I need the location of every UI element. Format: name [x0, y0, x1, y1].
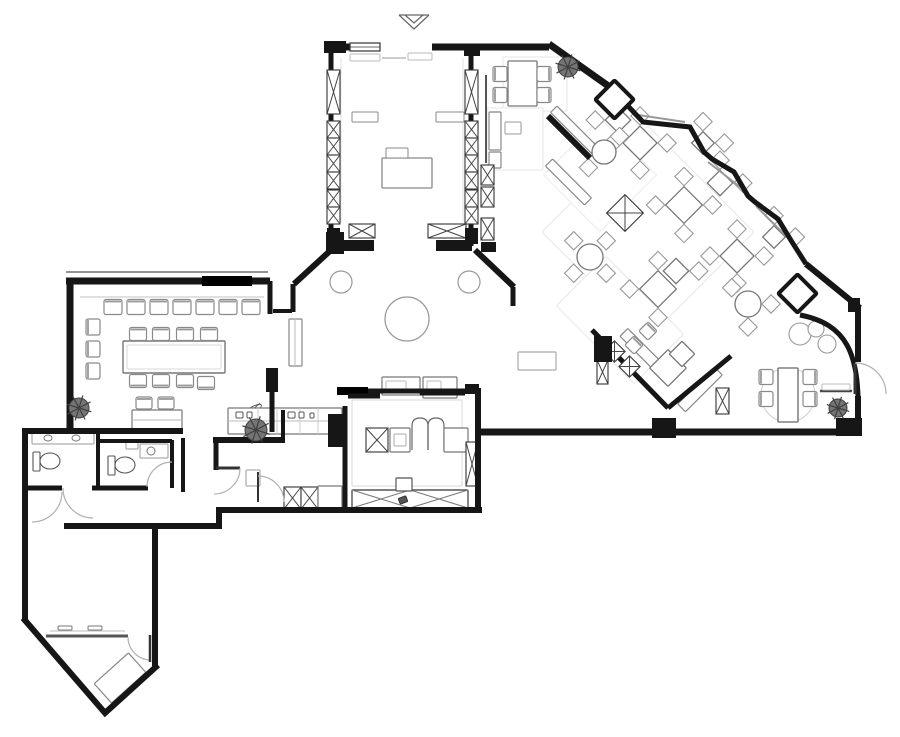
boh-equipment — [444, 428, 468, 452]
storage-furniture — [58, 626, 72, 630]
meeting-furniture — [219, 300, 237, 315]
basin — [44, 435, 52, 441]
boh-equipment — [366, 428, 388, 452]
door-swing — [63, 488, 93, 518]
floor-plan-page — [0, 0, 900, 737]
pier — [465, 207, 478, 224]
dining-furniture — [803, 370, 817, 385]
sofa — [489, 112, 501, 150]
wall — [294, 250, 331, 284]
storage-furniture — [88, 626, 102, 630]
column-block — [836, 418, 862, 436]
console — [352, 112, 378, 122]
pier — [481, 187, 494, 207]
column-block — [594, 336, 612, 362]
meeting-furniture — [242, 300, 260, 315]
basin — [147, 447, 155, 455]
corner-room-furniture — [493, 88, 507, 103]
column-block — [465, 384, 479, 394]
column-block — [436, 240, 472, 251]
column-block — [344, 240, 374, 251]
kitchen-equipment — [301, 487, 318, 509]
column-block — [652, 418, 676, 438]
boh-equipment — [394, 434, 406, 446]
meeting-furniture — [130, 328, 147, 341]
sink — [299, 412, 304, 418]
pier — [428, 224, 466, 238]
wc-tank — [108, 456, 115, 475]
sink — [310, 413, 314, 418]
table — [508, 61, 537, 106]
wc-bowl — [40, 453, 60, 469]
vent-strip — [352, 490, 468, 508]
corner-room-furniture — [537, 88, 551, 103]
hall-circle — [458, 271, 480, 293]
pier — [465, 70, 478, 114]
hall-circle — [330, 271, 352, 293]
dining-furniture — [759, 392, 773, 407]
meeting-furniture — [153, 375, 170, 388]
wc-tank — [33, 452, 40, 471]
pier — [465, 172, 478, 189]
kitchen-equipment — [284, 487, 301, 509]
column-block — [481, 242, 496, 252]
column-block — [324, 41, 346, 53]
pier — [465, 155, 478, 172]
boh-equipment — [396, 478, 412, 491]
meeting-furniture — [150, 300, 168, 315]
pier — [481, 218, 494, 240]
console — [436, 112, 464, 122]
meeting-furniture — [86, 363, 100, 379]
pier — [465, 121, 478, 138]
wall — [475, 250, 514, 287]
pier — [465, 190, 478, 207]
column-block — [326, 232, 344, 254]
entrance-arrow — [405, 15, 423, 23]
meeting-furniture — [86, 341, 100, 357]
column-block — [464, 44, 480, 56]
corner-room-furniture — [537, 67, 551, 82]
sink — [247, 412, 252, 418]
entry-sill — [408, 53, 432, 60]
pier — [327, 172, 340, 189]
pier — [481, 165, 494, 185]
door-swing — [258, 476, 284, 502]
private-room-furniture — [350, 53, 464, 188]
column-block — [848, 298, 860, 312]
window-sill — [350, 54, 380, 61]
meeting-furniture — [153, 328, 170, 341]
hall-circle — [385, 297, 429, 341]
meeting-furniture — [136, 397, 152, 409]
corner-room-furniture — [493, 67, 507, 82]
meeting-furniture — [86, 319, 100, 335]
pier — [716, 388, 729, 414]
dining-furniture — [692, 112, 734, 154]
pier — [327, 155, 340, 172]
nook-table — [778, 368, 798, 422]
kitchen-equipment — [318, 486, 342, 508]
pier — [327, 70, 340, 114]
floor-plan-drawing — [0, 0, 900, 737]
meeting-furniture — [104, 300, 122, 315]
meeting-furniture — [158, 397, 174, 409]
meeting-furniture — [201, 328, 218, 341]
pier — [327, 121, 340, 138]
entrance-marker — [399, 15, 429, 29]
door-swing — [32, 492, 62, 522]
dining-furniture — [822, 384, 850, 390]
planter — [789, 323, 811, 345]
private-room-furniture — [386, 148, 408, 158]
hall-circles — [330, 271, 480, 341]
door-swing — [147, 462, 172, 487]
meeting-furniture — [198, 377, 215, 390]
basin — [72, 435, 80, 441]
table — [382, 158, 432, 188]
column-block — [266, 368, 278, 392]
plant — [827, 397, 849, 419]
low-table — [518, 352, 556, 370]
pier — [327, 190, 340, 207]
side-table — [505, 122, 521, 134]
meeting-furniture — [196, 300, 214, 315]
meeting-furniture — [177, 328, 194, 341]
pier — [597, 360, 608, 384]
sink — [288, 412, 295, 418]
meeting-furniture — [127, 300, 145, 315]
pier — [327, 207, 340, 224]
wc-bowl — [115, 457, 135, 473]
wall — [350, 43, 380, 51]
meeting-furniture — [177, 375, 194, 388]
sink — [236, 412, 243, 418]
meeting-furniture — [127, 345, 221, 369]
dining-furniture — [803, 392, 817, 407]
planter — [818, 335, 836, 353]
meeting-furniture — [130, 375, 147, 388]
pier — [465, 138, 478, 155]
column-block — [328, 414, 346, 447]
dining-furniture — [723, 279, 781, 337]
door-swing — [214, 468, 240, 494]
pier — [349, 224, 375, 238]
meeting-furniture — [173, 300, 191, 315]
diamond-pier — [595, 80, 633, 118]
diamond-pier — [778, 274, 816, 312]
pier — [327, 138, 340, 155]
entrance-arrow — [399, 15, 429, 29]
dining-furniture — [759, 370, 773, 385]
